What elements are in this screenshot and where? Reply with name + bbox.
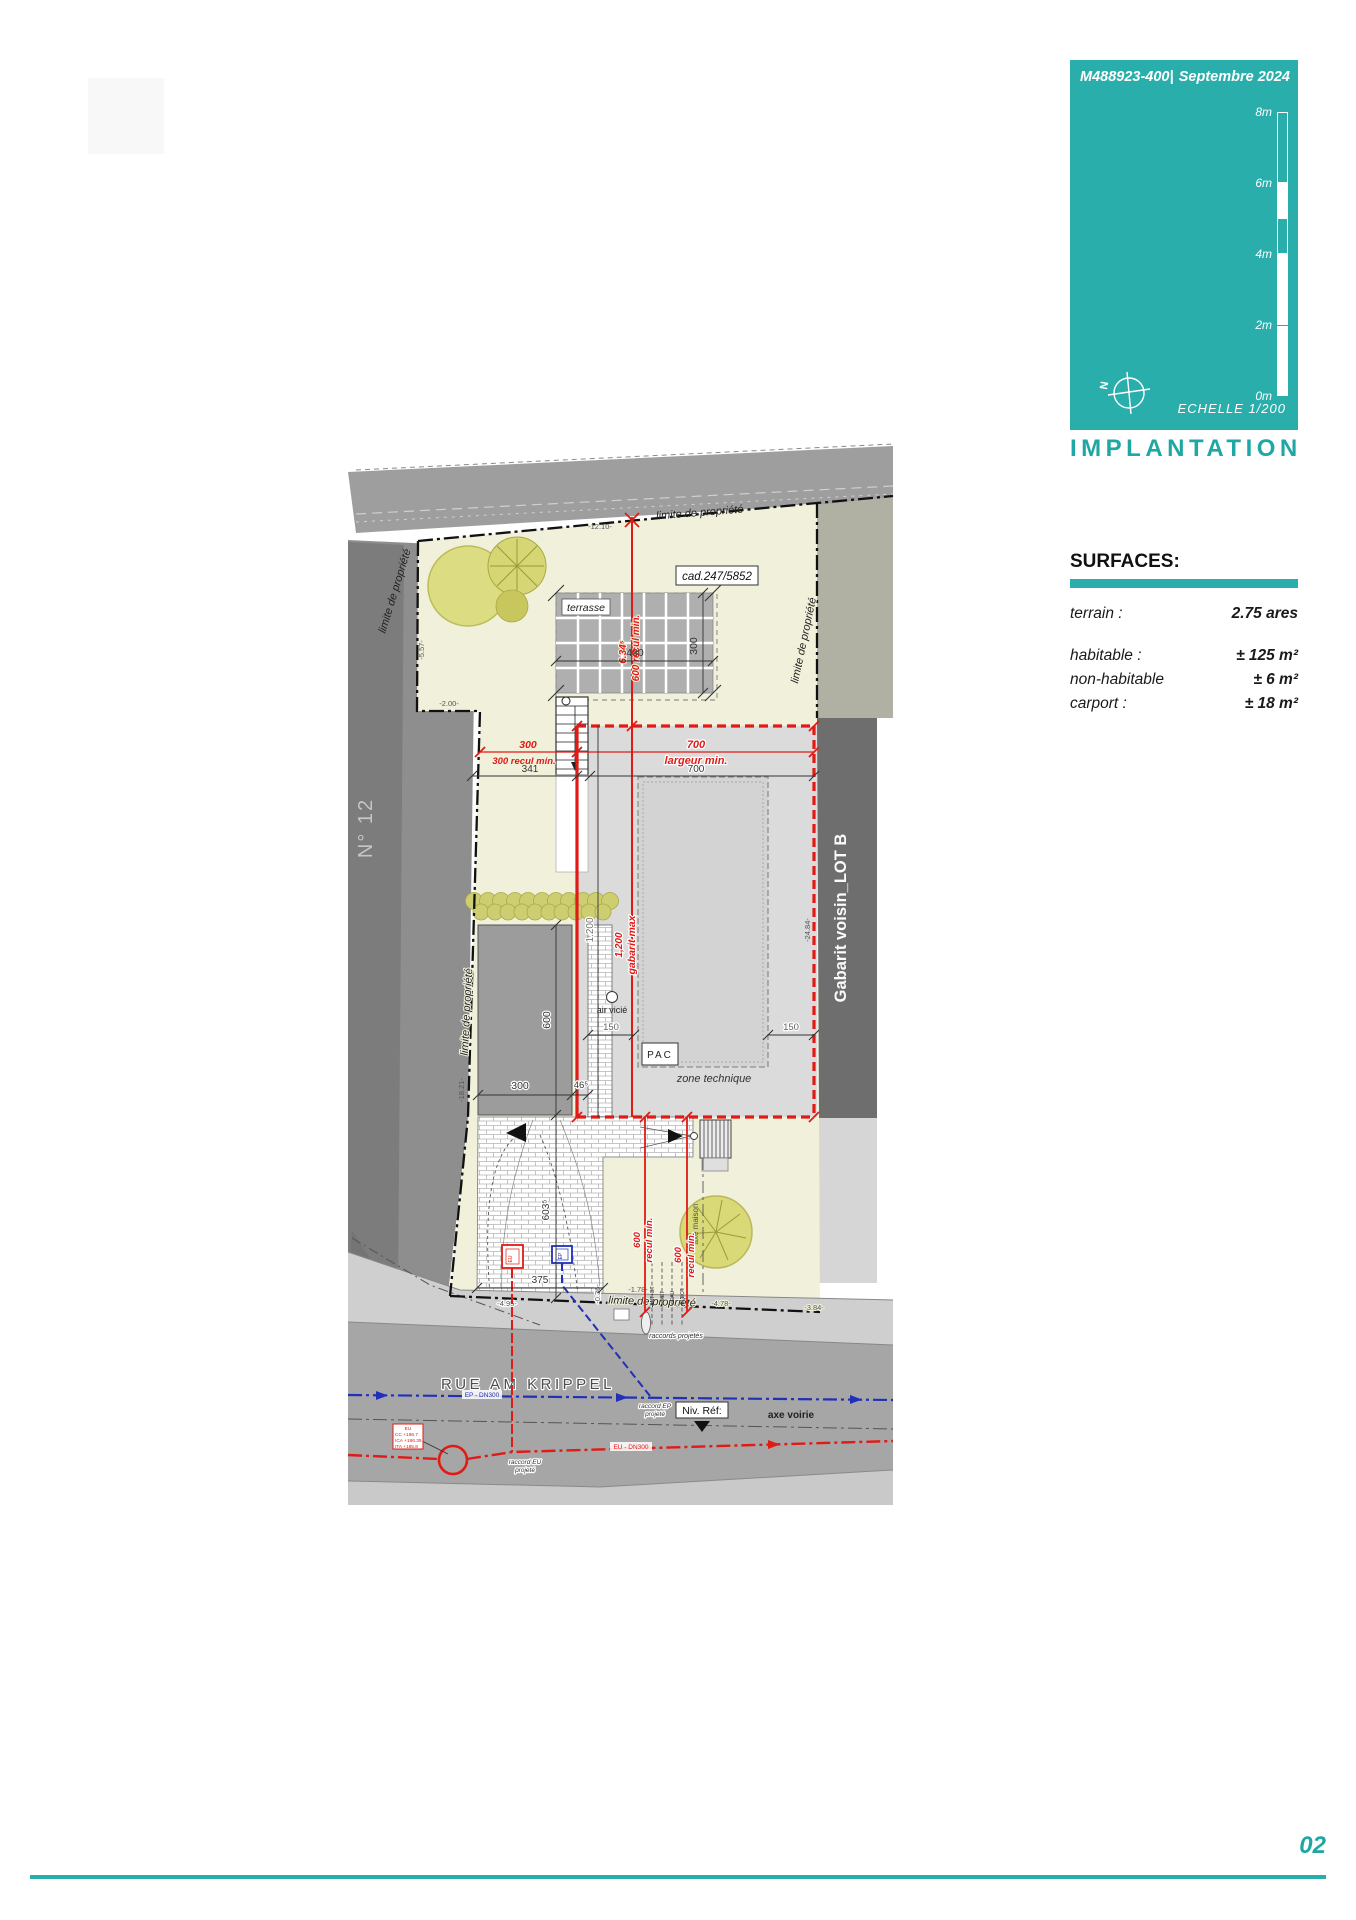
elevation: -24.84- (803, 918, 812, 942)
dim-600-recul-b2: 600 (673, 1246, 684, 1263)
dim-300-red: 300 (519, 739, 537, 751)
surface-row-habitable: habitable : ± 125 m² (1070, 647, 1298, 665)
scale-tick-4m: 4m (1255, 247, 1272, 261)
surface-label: non-habitable (1070, 671, 1164, 689)
dim-700-black: 700 (688, 764, 705, 775)
dim-465: 46⁵ (574, 1080, 589, 1091)
dim-gabarit-max: gabarit max (626, 914, 638, 975)
surface-value: 2.75 ares (1232, 605, 1298, 623)
elevation: -0.36- (593, 1284, 602, 1304)
elevation: -4.95- (497, 1299, 517, 1308)
dim-600-recul-b1: 600 (632, 1231, 643, 1248)
surfaces-underline (1070, 579, 1298, 588)
air-vicie-icon (607, 992, 618, 1003)
dim-300-terrasse: 300 (688, 637, 700, 655)
hedge (466, 893, 619, 921)
dim-600-carport: 600 (541, 1011, 553, 1029)
dim-700-red: 700 (687, 739, 706, 751)
utility-label: MET (660, 1291, 666, 1302)
ep-line-label: EP - DN300 (465, 1392, 500, 1399)
dim-150-left: 150 (603, 1022, 619, 1033)
scale-tick-8m: 8m (1255, 105, 1272, 119)
elevation: -18.21- (457, 1078, 466, 1102)
doc-date: Septembre 2024 (1179, 69, 1290, 85)
elevation: -5.57- (417, 640, 426, 660)
dim-1200-gray: 1.200 (585, 917, 596, 942)
eu-note: ITA +185.8 (395, 1444, 418, 1450)
surface-row-non-habitable: non-habitable ± 6 m² (1070, 671, 1298, 689)
scale-tick-6m: 6m (1255, 176, 1272, 190)
terrasse-label: terrasse (567, 602, 605, 614)
north-arrow-icon: N (1096, 368, 1154, 416)
scale-bar-labels: 8m 6m 4m 2m 0m (1242, 112, 1272, 396)
raccord-ep-label: raccord EP (639, 1403, 672, 1410)
logo-placeholder (88, 78, 164, 154)
dim-6035: 603⁵ (541, 1200, 552, 1221)
surface-value: ± 18 m² (1245, 695, 1298, 713)
surface-label: terrain : (1070, 605, 1123, 623)
exterior-stairs (556, 697, 588, 775)
site-plan-drawing: N° 12 Gabarit voisin_LOT B (340, 430, 900, 1515)
eu-riser-label: EU (508, 1255, 514, 1262)
neighbour-parcel-right (817, 497, 893, 718)
gabarit-voisin-label: Gabarit voisin_LOT B (832, 834, 850, 1003)
dim-1200-red: 1,200 (614, 932, 625, 957)
brick-wall (588, 925, 612, 1117)
north-letter: N (1098, 381, 1111, 391)
niv-ref-label: Niv. Réf: (682, 1405, 721, 1417)
cadastre-label: cad.247/5852 (682, 571, 752, 583)
surface-row-carport: carport : ± 18 m² (1070, 695, 1298, 713)
dim-300-carport: 300 (511, 1080, 529, 1092)
neighbour-house-number: N° 12 (355, 798, 377, 858)
eu-note: CC +186.7 (395, 1432, 418, 1438)
surface-label: carport : (1070, 695, 1127, 713)
footer-rule (30, 1875, 1326, 1879)
title-block: M488923-400| Septembre 2024 8m 6m 4m 2m … (1070, 60, 1298, 430)
page-number: 02 (1240, 1832, 1326, 1860)
utility-label: ANT+BT (650, 1286, 656, 1305)
scale-text: ECHELLE 1/200 (1178, 401, 1286, 416)
utility-label: EAU (670, 1290, 676, 1301)
eu-note: EU (405, 1426, 412, 1432)
surface-row-terrain: terrain : 2.75 ares (1070, 605, 1298, 623)
zone-technique-label: zone technique (676, 1073, 752, 1085)
dim-480: 480 (626, 647, 644, 659)
dim-recul-min-b2: recul min. (686, 1233, 697, 1278)
dim-375: 375 (532, 1275, 549, 1286)
elevation: -4.78- (711, 1299, 731, 1308)
raccords-projetes-label: raccords projetés (649, 1333, 703, 1340)
doc-reference: M488923-400| (1080, 69, 1174, 85)
air-vicie-label: air vicié (597, 1005, 628, 1015)
dim-341: 341 (522, 764, 539, 775)
surface-value: ± 125 m² (1236, 647, 1298, 665)
raccord-eu-label2: projeté (514, 1467, 535, 1474)
eu-line-label: EU - DN300 (613, 1444, 648, 1451)
graphic-scale-bar (1277, 112, 1288, 396)
plan-sheet: M488923-400| Septembre 2024 8m 6m 4m 2m … (0, 0, 1356, 1920)
elevation: -3.84- (804, 1303, 824, 1312)
raccord-ep-label2: projeté (644, 1411, 665, 1418)
dim-150-right: 150 (783, 1022, 799, 1033)
axe-voirie-label: axe voirie (768, 1410, 815, 1421)
raccord-eu-label: raccord EU (509, 1459, 542, 1466)
surface-label: habitable : (1070, 647, 1142, 665)
ep-riser-label: EP (558, 1252, 564, 1259)
pac-label: PAC (647, 1050, 673, 1061)
elevation: -12.10- (588, 522, 612, 531)
dim-recul-min-b1: recul min. (644, 1218, 655, 1263)
scale-tick-2m: 2m (1255, 318, 1272, 332)
eu-note: ICA +186.35 (395, 1438, 422, 1444)
sheet-title: IMPLANTATION (1070, 435, 1298, 463)
surface-value: ± 6 m² (1253, 671, 1298, 689)
utility-label: ELECT. (680, 1288, 686, 1305)
house (638, 777, 768, 1067)
surfaces-heading: SURFACES: (1070, 551, 1298, 573)
elevation: -2.00- (439, 699, 459, 708)
